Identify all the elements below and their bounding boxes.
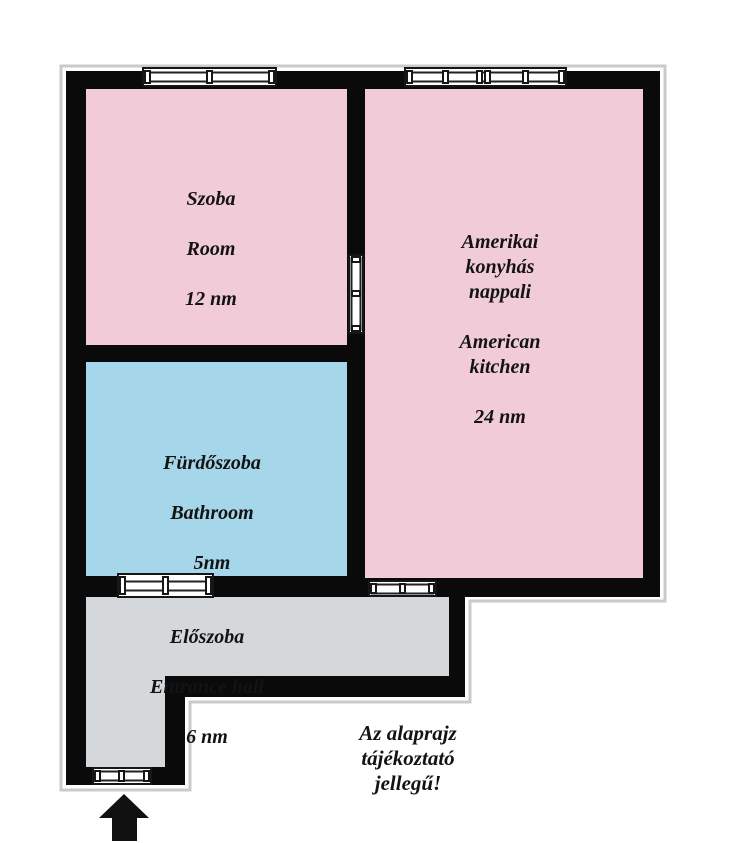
wall-right (643, 71, 660, 596)
room-label-bathroom: Fürdőszoba Bathroom 5nm (163, 426, 261, 601)
window-szoba-icon (142, 67, 277, 87)
window-kitchen-icon (404, 67, 567, 87)
room-label-kitchen: Amerikai konyhás nappali American kitche… (459, 205, 540, 455)
door-entrance-icon (92, 767, 152, 785)
hall-name-hu: Előszoba (150, 625, 264, 650)
room-label-hall: Előszoba Entrance hall 6 nm (150, 600, 264, 775)
kitchen-name-en: American kitchen (459, 330, 540, 380)
bathroom-name-hu: Fürdőszoba (163, 451, 261, 476)
kitchen-area: 24 nm (459, 405, 540, 430)
room-hall-main (86, 597, 449, 676)
floor-plan: Szoba Room 12 nm Amerikai konyhás nappal… (0, 0, 730, 843)
entrance-arrow-stem (112, 817, 137, 841)
hall-name-en: Entrance hall (150, 675, 264, 700)
wall-left (66, 71, 86, 785)
entrance-arrow-head (99, 794, 149, 818)
hall-area: 6 nm (150, 725, 264, 750)
door-szoba-kitchen-icon (348, 254, 364, 334)
door-kitchen-hall-icon (368, 580, 437, 597)
szoba-name-en: Room (185, 237, 237, 262)
bathroom-area: 5nm (163, 551, 261, 576)
kitchen-name-hu: Amerikai konyhás nappali (459, 230, 540, 305)
szoba-area: 12 nm (185, 287, 237, 312)
bathroom-name-en: Bathroom (163, 501, 261, 526)
wall-szoba-bathroom (86, 345, 365, 362)
disclaimer-text: Az alaprajz tájékoztató jellegű! (359, 721, 456, 796)
szoba-name-hu: Szoba (185, 187, 237, 212)
room-label-szoba: Szoba Room 12 nm (185, 162, 237, 337)
